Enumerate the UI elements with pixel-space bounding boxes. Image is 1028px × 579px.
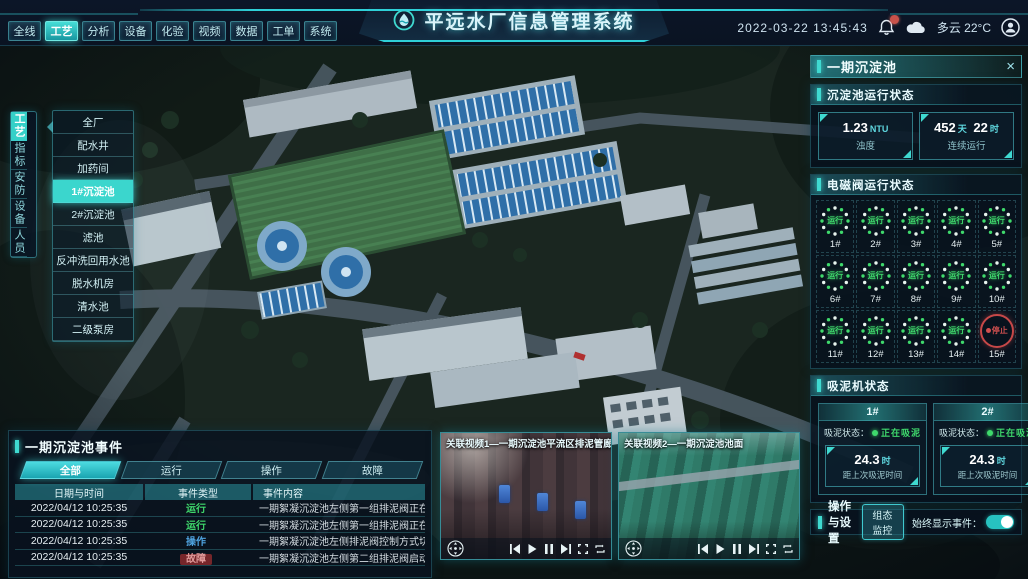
event-content: 一期絮凝沉淀池左侧排泥阀控制方式切换为手动 <box>249 533 425 548</box>
valve-gauge: 停止 15# <box>978 310 1016 363</box>
mud-machine-card: 1# 吸泥状态： 正在吸泥 24.3时 距上次吸泥时间 <box>818 403 927 495</box>
nav-tab[interactable]: 视频 <box>193 21 226 41</box>
main-nav: 全线工艺分析设备化验视频数据工单系统 <box>8 21 337 41</box>
runtime-hours-unit: 时 <box>990 124 999 134</box>
mud-suction-section: 吸泥机状态 1# 吸泥状态： 正在吸泥 24.3时 距上次吸泥时间 2# <box>810 375 1022 503</box>
event-row: 2022/04/12 10:25:35 故障 一期絮凝沉淀池左侧第二组排泥阀启动… <box>15 550 425 567</box>
tank-status-header: 沉淀池运行状态 <box>811 85 1021 105</box>
valve-dot-ring: 运行 <box>939 314 973 348</box>
valve-gauge: 运行 8# <box>897 255 935 308</box>
valve-status: 运行 <box>908 325 924 336</box>
loop-icon[interactable] <box>595 544 605 554</box>
mud-suction-title: 吸泥机状态 <box>827 378 890 394</box>
valve-dot-ring: 运行 <box>939 259 973 293</box>
valve-status: 运行 <box>868 325 884 336</box>
user-avatar-icon[interactable] <box>1001 18 1020 37</box>
valve-status: 运行 <box>827 270 843 281</box>
valve-dot-ring: 运行 <box>980 259 1014 293</box>
mud-machines: 1# 吸泥状态： 正在吸泥 24.3时 距上次吸泥时间 2# 吸泥状态： <box>811 396 1021 502</box>
events-tab-label: 全部 <box>60 463 81 478</box>
play-icon[interactable] <box>527 544 537 554</box>
valve-dot-ring: 运行 <box>980 204 1014 238</box>
area-menu-item[interactable]: 加药间 <box>53 157 133 180</box>
mud-machine-id: 2# <box>934 404 1028 421</box>
event-row: 2022/04/12 10:25:35 运行 一期絮凝沉淀池左侧第一组排泥阀正在… <box>15 500 425 517</box>
valve-dot-ring: 运行 <box>899 259 933 293</box>
valve-dot-ring: 运行 <box>818 204 852 238</box>
nav-tab[interactable]: 数据 <box>230 21 263 41</box>
show-events-label: 始终显示事件： <box>912 515 982 530</box>
mud-time-card: 24.3时 距上次吸泥时间 <box>825 445 920 487</box>
event-content: 一期絮凝沉淀池左侧第二组排泥阀启动失败 <box>249 550 425 565</box>
side-tab[interactable]: 指标 <box>11 141 27 170</box>
fullscreen-icon[interactable] <box>766 544 776 554</box>
events-table-header: 日期与时间 事件类型 事件内容 <box>15 484 425 500</box>
valve-gauge: 运行 1# <box>816 200 854 253</box>
show-events-toggle-group: 始终显示事件： <box>912 515 1014 530</box>
nav-tab[interactable]: 工单 <box>267 21 300 41</box>
valve-id: 6# <box>830 294 841 305</box>
valve-status: 运行 <box>908 270 924 281</box>
video2-controls <box>619 538 799 559</box>
runtime-label: 连续运行 <box>947 138 985 152</box>
valve-status: 运行 <box>989 215 1005 226</box>
area-menu-item[interactable]: 滤池 <box>53 226 133 249</box>
valve-grid: 运行 1# 运行 2 <box>811 195 1021 368</box>
nav-tab[interactable]: 工艺 <box>45 21 78 41</box>
area-menu-item[interactable]: 1#沉淀池 <box>53 180 133 203</box>
events-tab[interactable]: 操作 <box>221 461 322 479</box>
valve-id: 5# <box>992 239 1003 250</box>
operations-section: 操作与设置 组态监控 始终显示事件： <box>810 509 1022 535</box>
valve-status-text: 运行 <box>948 325 964 336</box>
event-type-badge: 操作 <box>186 537 206 548</box>
valve-status-text: 运行 <box>989 270 1005 281</box>
valve-gauge: 运行 5# <box>978 200 1016 253</box>
event-type-badge: 运行 <box>186 521 206 532</box>
events-tab-label: 运行 <box>160 463 181 478</box>
event-time: 2022/04/12 10:25:35 <box>15 502 143 514</box>
video1-controls <box>441 538 611 559</box>
runtime-days: 452 <box>934 120 956 135</box>
valve-gauge: 运行 4# <box>937 200 975 253</box>
valve-status: 运行 <box>948 270 964 281</box>
notification-bell-icon[interactable] <box>878 19 895 36</box>
valve-dot-ring: 运行 <box>818 314 852 348</box>
section-marker <box>817 88 821 101</box>
mud-machine-card: 2# 吸泥状态： 正在吸泥 24.3时 距上次吸泥时间 <box>933 403 1028 495</box>
valve-id: 14# <box>948 349 964 360</box>
valve-id: 15# <box>989 349 1005 360</box>
valve-id: 8# <box>911 294 922 305</box>
notification-badge <box>890 15 899 24</box>
fullscreen-icon[interactable] <box>578 544 588 554</box>
pause-icon[interactable] <box>732 544 742 554</box>
valve-dot-ring: 运行 <box>859 204 893 238</box>
valves-title: 电磁阀运行状态 <box>827 177 915 193</box>
runtime-card: 452天 22时 连续运行 <box>919 112 1014 160</box>
valve-dot-ring: 停止 <box>980 314 1014 348</box>
events-tab[interactable]: 运行 <box>120 461 221 479</box>
event-time: 2022/04/12 10:25:35 <box>15 518 143 530</box>
column-content: 事件内容 <box>253 484 425 500</box>
valve-gauge: 运行 7# <box>856 255 894 308</box>
right-panel-header: 一期沉淀池 × <box>810 55 1022 78</box>
valve-status: 运行 <box>827 215 843 226</box>
loop-icon[interactable] <box>783 544 793 554</box>
valve-status: 运行 <box>989 270 1005 281</box>
event-row: 2022/04/12 10:25:35 运行 一期絮凝沉淀池左侧第一组排泥阀正在… <box>15 517 425 534</box>
playback-controls <box>698 544 793 554</box>
event-content: 一期絮凝沉淀池左侧第一组排泥阀正在排泥 <box>249 517 425 532</box>
side-tab[interactable]: 人员 <box>11 228 27 257</box>
datetime: 2022-03-22 13:45:43 <box>737 21 867 35</box>
valve-dot-ring: 运行 <box>859 314 893 348</box>
mud-status-value: 正在吸泥 <box>996 426 1028 439</box>
playback-controls <box>510 544 605 554</box>
mud-status-row: 吸泥状态： 正在吸泥 <box>819 421 926 441</box>
section-marker <box>818 516 822 529</box>
valve-status: 运行 <box>827 325 843 336</box>
ptz-dpad[interactable] <box>625 540 642 557</box>
side-tab[interactable]: 工艺 <box>11 112 27 141</box>
operations-title: 操作与设置 <box>828 498 854 546</box>
events-tab-label: 操作 <box>261 463 282 478</box>
event-type-badge: 运行 <box>186 504 206 515</box>
mud-suction-header: 吸泥机状态 <box>811 376 1021 396</box>
runtime-value: 452天 22时 <box>934 120 999 135</box>
valve-id: 11# <box>828 349 843 360</box>
event-type: 故障 <box>143 550 249 565</box>
valve-status: 运行 <box>868 215 884 226</box>
turbidity-number: 1.23 <box>843 120 868 135</box>
valve-status-text: 运行 <box>827 325 843 336</box>
turbidity-value: 1.23NTU <box>843 120 889 135</box>
valve-status-text: 运行 <box>908 270 924 281</box>
events-tab-label: 故障 <box>361 463 382 478</box>
valve-status: 运行 <box>948 325 964 336</box>
valve-status: 运行 <box>868 270 884 281</box>
running-dot <box>872 430 878 436</box>
app-title-frame: 平远水厂信息管理系统 <box>359 0 669 42</box>
side-tab[interactable]: 安防 <box>11 170 27 199</box>
operations-title-wrap: 操作与设置 <box>818 498 854 546</box>
area-menu-item[interactable]: 配水井 <box>53 134 133 157</box>
dashboard: { "colors":{"accent":"#35d6cf","green":"… <box>0 0 1028 579</box>
top-header: 全线工艺分析设备化验视频数据工单系统 平远水厂信息管理系统 2022-03-22… <box>0 0 1028 46</box>
column-datetime: 日期与时间 <box>15 484 143 500</box>
events-tab[interactable]: 全部 <box>20 461 121 479</box>
side-tab-strip: 工艺指标安防设备人员 <box>10 111 37 258</box>
valve-status: 停止 <box>986 325 1008 336</box>
app-logo-icon <box>393 9 415 31</box>
events-title: 一期沉淀池事件 <box>25 437 123 456</box>
header-right: 2022-03-22 13:45:43 多云 22°C <box>737 18 1020 37</box>
close-icon[interactable]: × <box>1006 59 1015 74</box>
events-panel: 一期沉淀池事件 全部运行操作故障 日期与时间 事件类型 事件内容 2022/04… <box>8 430 432 578</box>
valve-status: 运行 <box>908 215 924 226</box>
header-accent-line-right <box>890 13 1028 15</box>
valve-status-text: 运行 <box>948 215 964 226</box>
nav-tab[interactable]: 全线 <box>8 21 41 41</box>
valve-status: 运行 <box>948 215 964 226</box>
video-panel-2: 关联视频2—一期沉淀池池面 <box>618 432 800 560</box>
skip-back-icon[interactable] <box>510 544 520 554</box>
valve-status-text: 运行 <box>868 215 884 226</box>
valve-id: 3# <box>911 239 922 250</box>
skip-forward-icon[interactable] <box>749 544 759 554</box>
valve-status-text: 运行 <box>868 325 884 336</box>
mud-time-value: 24.3时 <box>969 452 1005 467</box>
valve-status-text: 运行 <box>827 215 843 226</box>
event-type: 运行 <box>143 500 249 515</box>
video-panel-1: 关联视频1—一期沉淀池平流区排泥管廊 <box>440 432 612 560</box>
valve-gauge: 运行 2# <box>856 200 894 253</box>
right-panel-title: 一期沉淀池 <box>827 57 897 76</box>
running-dot <box>987 430 993 436</box>
valve-id: 7# <box>870 294 881 305</box>
mud-time-caption: 距上次吸泥时间 <box>843 469 903 481</box>
valve-id: 1# <box>830 239 841 250</box>
valve-dot-ring: 运行 <box>818 259 852 293</box>
event-type-badge: 故障 <box>180 554 212 565</box>
valve-dot-ring: 运行 <box>899 314 933 348</box>
mud-time-number: 24.3 <box>854 452 879 467</box>
tank-status-section: 沉淀池运行状态 1.23NTU 浊度 452天 22时 连续运行 <box>810 84 1022 168</box>
section-marker <box>817 379 821 392</box>
mud-time-unit: 时 <box>882 456 891 466</box>
skip-back-icon[interactable] <box>698 544 708 554</box>
valve-id: 12# <box>868 349 884 360</box>
mud-status-value: 正在吸泥 <box>881 426 921 439</box>
event-time: 2022/04/12 10:25:35 <box>15 535 143 547</box>
valve-status-text: 运行 <box>908 325 924 336</box>
valve-gauge: 运行 11# <box>816 310 854 363</box>
event-type: 运行 <box>143 517 249 532</box>
ptz-dpad[interactable] <box>447 540 464 557</box>
valve-id: 9# <box>951 294 962 305</box>
column-type: 事件类型 <box>145 484 251 500</box>
area-menu-item[interactable]: 反冲洗回用水池 <box>53 249 133 272</box>
turbidity-unit: NTU <box>870 124 889 134</box>
valve-id: 13# <box>908 349 924 360</box>
right-panel: 一期沉淀池 × 沉淀池运行状态 1.23NTU 浊度 452天 22时 连续运行 <box>810 55 1022 535</box>
show-events-toggle[interactable] <box>986 515 1014 529</box>
event-content: 一期絮凝沉淀池左侧第一组排泥阀正在排泥 <box>249 500 425 515</box>
nav-tab[interactable]: 分析 <box>82 21 115 41</box>
turbidity-card: 1.23NTU 浊度 <box>818 112 913 160</box>
mud-status-row: 吸泥状态： 正在吸泥 <box>934 421 1028 441</box>
valve-status-text: 运行 <box>908 215 924 226</box>
valve-gauge: 运行 3# <box>897 200 935 253</box>
valve-dot-ring: 运行 <box>859 259 893 293</box>
valve-status-text: 运行 <box>948 270 964 281</box>
event-time: 2022/04/12 10:25:35 <box>15 551 143 563</box>
area-menu-item[interactable]: 全厂 <box>53 111 133 134</box>
video2-title: 关联视频2—一期沉淀池池面 <box>624 436 743 450</box>
valve-status-text: 运行 <box>989 215 1005 226</box>
header-accent-line <box>140 9 888 11</box>
pause-icon[interactable] <box>544 544 554 554</box>
mud-time-card: 24.3时 距上次吸泥时间 <box>940 445 1028 487</box>
valves-section: 电磁阀运行状态 运行 1# <box>810 174 1022 369</box>
nav-tab[interactable]: 系统 <box>304 21 337 41</box>
event-type: 操作 <box>143 533 249 548</box>
runtime-hours: 22 <box>973 120 987 135</box>
mud-status-label: 吸泥状态： <box>824 426 869 439</box>
video1-title: 关联视频1—一期沉淀池平流区排泥管廊 <box>446 436 612 450</box>
valve-gauge: 运行 10# <box>978 255 1016 308</box>
tank-status-title: 沉淀池运行状态 <box>827 87 915 103</box>
events-header: 一期沉淀池事件 <box>15 436 425 456</box>
valve-id: 4# <box>951 239 962 250</box>
mud-time-unit: 时 <box>997 456 1006 466</box>
valve-status-text: 停止 <box>992 325 1008 336</box>
events-tab[interactable]: 故障 <box>321 461 422 479</box>
events-tabs: 全部运行操作故障 <box>23 461 425 479</box>
weather-cloud-icon <box>905 20 927 35</box>
valve-gauge: 运行 13# <box>897 310 935 363</box>
mud-status-label: 吸泥状态： <box>939 426 984 439</box>
area-menu-item[interactable]: 清水池 <box>53 295 133 318</box>
area-menu-item[interactable]: 脱水机房 <box>53 272 133 295</box>
section-marker <box>817 178 821 191</box>
mud-machine-id: 1# <box>819 404 926 421</box>
area-menu-item[interactable]: 2#沉淀池 <box>53 203 133 226</box>
area-menu: 全厂配水井加药间1#沉淀池2#沉淀池滤池反冲洗回用水池脱水机房清水池二级泵房 <box>52 110 134 342</box>
mud-time-number: 24.3 <box>969 452 994 467</box>
header-accent-line-left <box>0 13 138 15</box>
stop-dot <box>986 328 991 333</box>
scada-monitor-button[interactable]: 组态监控 <box>862 504 904 540</box>
valve-dot-ring: 运行 <box>899 204 933 238</box>
runtime-days-unit: 天 <box>958 124 967 134</box>
valve-id: 10# <box>989 294 1005 305</box>
side-tab[interactable]: 设备 <box>11 199 27 228</box>
nav-tab[interactable]: 设备 <box>119 21 152 41</box>
valve-gauge: 运行 14# <box>937 310 975 363</box>
valve-gauge: 运行 6# <box>816 255 854 308</box>
skip-forward-icon[interactable] <box>561 544 571 554</box>
valve-id: 2# <box>870 239 881 250</box>
nav-tab[interactable]: 化验 <box>156 21 189 41</box>
mud-time-value: 24.3时 <box>854 452 890 467</box>
header-marker <box>817 60 821 73</box>
valve-dot-ring: 运行 <box>939 204 973 238</box>
valve-gauge: 运行 12# <box>856 310 894 363</box>
events-marker <box>15 440 19 453</box>
valve-gauge: 运行 9# <box>937 255 975 308</box>
valves-header: 电磁阀运行状态 <box>811 175 1021 195</box>
mud-time-caption: 距上次吸泥时间 <box>958 469 1018 481</box>
valve-status-text: 运行 <box>868 270 884 281</box>
event-row: 2022/04/12 10:25:35 操作 一期絮凝沉淀池左侧排泥阀控制方式切… <box>15 533 425 550</box>
valve-status-text: 运行 <box>827 270 843 281</box>
turbidity-label: 浊度 <box>856 138 875 152</box>
events-table: 日期与时间 事件类型 事件内容 2022/04/12 10:25:35 运行 一… <box>15 484 425 566</box>
weather-text: 多云 22°C <box>937 19 991 36</box>
play-icon[interactable] <box>715 544 725 554</box>
area-menu-item[interactable]: 二级泵房 <box>53 318 133 341</box>
